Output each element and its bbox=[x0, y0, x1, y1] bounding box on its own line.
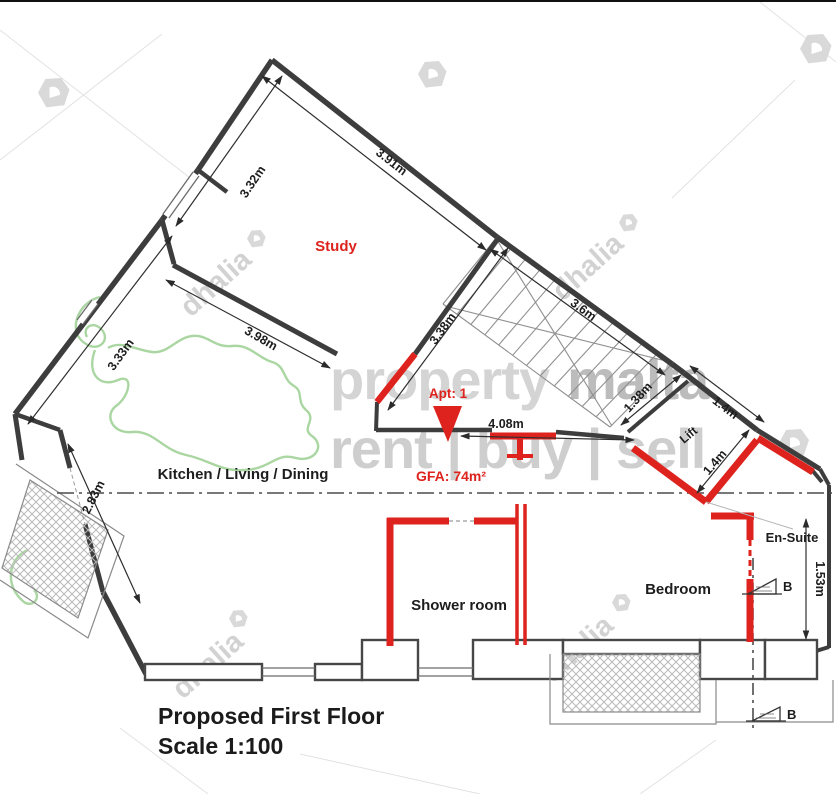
room-label-study: Study bbox=[315, 238, 357, 255]
dimension-kitchen-upper-left: 3.33m bbox=[105, 336, 137, 373]
dhalia-watermark: dhalia bbox=[546, 227, 630, 307]
section-label-b-upper: B bbox=[783, 579, 792, 594]
gem-icon bbox=[229, 610, 248, 627]
gem-icon bbox=[612, 594, 631, 611]
apartment-gfa: GFA: 74m² bbox=[416, 468, 486, 484]
window-bottom-center bbox=[418, 668, 473, 676]
floor-plan-drawing: dhalia dhalia dhalia dhalia property mal… bbox=[0, 2, 836, 794]
dimension-hallway: 4.08m bbox=[488, 417, 523, 431]
dhalia-watermark: dhalia bbox=[174, 243, 258, 323]
dimension-study-left: 3.32m bbox=[237, 163, 268, 200]
gem-icon bbox=[800, 34, 832, 63]
gem-icon bbox=[38, 78, 70, 107]
room-label-kitchen-living-dining: Kitchen / Living / Dining bbox=[158, 466, 329, 483]
drawing-scale: Scale 1:100 bbox=[158, 733, 283, 759]
dimension-ensuite-depth: 1.53m bbox=[813, 561, 827, 596]
window-upper-left bbox=[163, 172, 199, 218]
dimension-stairs-outer: 3.6m bbox=[568, 296, 599, 324]
window-bottom-left bbox=[262, 668, 315, 676]
floor-plan-page: dhalia dhalia dhalia dhalia property mal… bbox=[0, 0, 836, 792]
gem-icon bbox=[418, 61, 447, 88]
brand-watermark-property: property bbox=[330, 348, 550, 411]
gem-icon bbox=[619, 214, 638, 231]
room-label-en-suite: En-Suite bbox=[766, 530, 819, 545]
gem-icon bbox=[247, 230, 266, 247]
dimension-study-top: 3.91m bbox=[373, 145, 410, 178]
section-label-b-lower: B bbox=[787, 707, 796, 722]
apartment-label: Apt: 1 bbox=[429, 386, 468, 401]
dimension-lift-top: 1.4m bbox=[710, 394, 741, 422]
room-label-bedroom: Bedroom bbox=[645, 581, 711, 598]
dimension-kitchen-lower-left: 2.83m bbox=[79, 478, 108, 516]
room-label-shower-room: Shower room bbox=[411, 597, 507, 614]
drawing-title: Proposed First Floor bbox=[158, 703, 384, 729]
title-block: Proposed First Floor Scale 1:100 bbox=[158, 703, 384, 759]
balcony-left bbox=[0, 464, 124, 638]
